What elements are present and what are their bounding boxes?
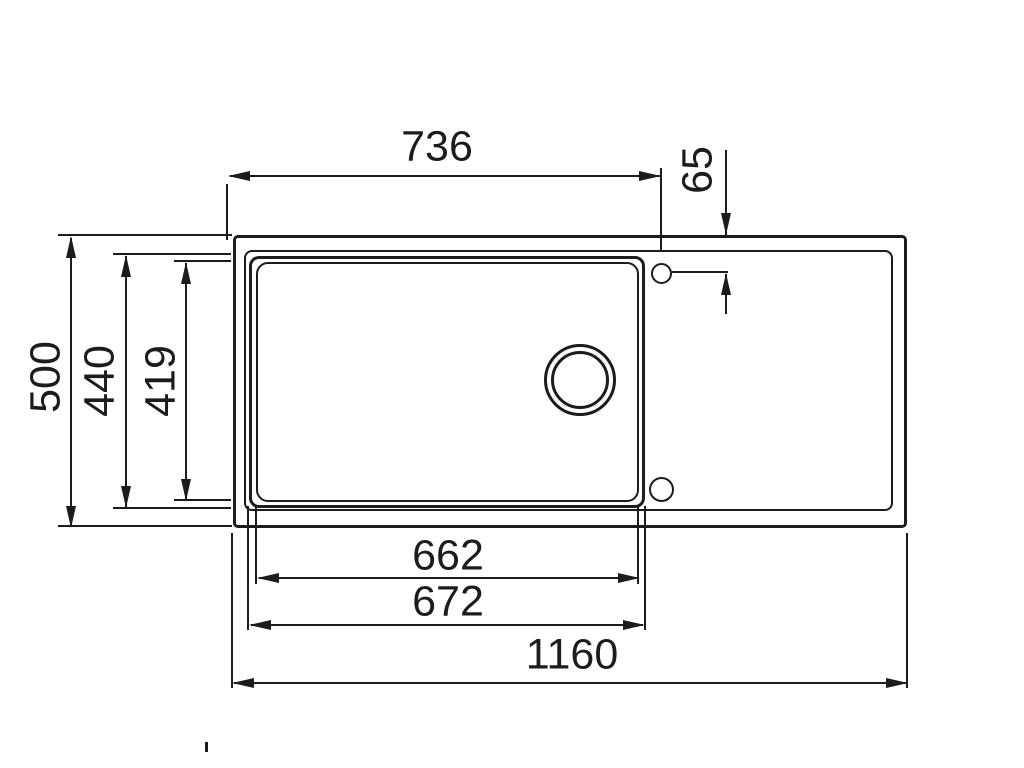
dim-500-ext-line-bottom [58,525,232,527]
dim-419-ext-line-bottom [174,499,231,501]
dim-736-line [230,175,660,177]
dim-419-arrow-bottom [181,479,191,501]
dim-736-ext-line-right [660,168,662,250]
dim-1160-arrow-right [886,678,908,688]
dim-440-line [125,256,127,507]
dim-500-ext-line-top [58,234,232,236]
dim-440-arrow-top [121,255,131,277]
tap-hole-bottom-circle [649,477,674,502]
dim-440-arrow-bottom [121,486,131,508]
dim-440-label: 440 [79,345,122,417]
dim-672-ext-line-left [247,506,249,630]
dim-736-arrow-right [639,171,661,181]
dim-440-ext-line-bottom [113,507,231,509]
dim-500-arrow-top [66,236,76,258]
dim-736-ext-line-left [226,184,228,240]
dim-672-ext-line-right [644,506,646,630]
dim-736-arrow-left [228,171,250,181]
dim-65-arrow-down [721,213,731,235]
dim-662-label: 662 [412,535,484,578]
dim-1160-arrow-left [232,678,254,688]
dim-419-label: 419 [140,345,183,417]
dim-672-arrow-right [623,620,645,630]
tap-hole-leader-line [672,271,728,273]
dim-419-line [185,263,187,500]
dim-672-arrow-left [249,620,271,630]
dim-662-arrow-left [257,573,279,583]
dim-1160-ext-line-right [906,533,908,688]
drawing-canvas: 736 65 500 440 419 662 672 1160 [0,0,1024,768]
dim-672-label: 672 [412,581,484,624]
dim-65-label: 65 [677,146,720,194]
dim-65-arrow-up [721,273,731,295]
drain-hole-inner-circle [551,351,609,409]
dim-440-ext-line-top [113,253,231,255]
dim-662-ext-line-left [255,506,257,584]
dim-419-arrow-top [181,262,191,284]
dim-736-label: 736 [401,126,473,169]
tap-hole-top-circle [651,263,672,284]
dim-1160-ext-line-left [231,533,233,688]
dim-500-line [70,238,72,527]
dim-500-label: 500 [25,341,68,413]
dim-419-ext-line-top [174,260,231,262]
dim-1160-label: 1160 [526,634,618,677]
artifact-tick [205,742,208,752]
dim-662-ext-line-right [637,506,639,584]
dim-1160-line [234,682,907,684]
